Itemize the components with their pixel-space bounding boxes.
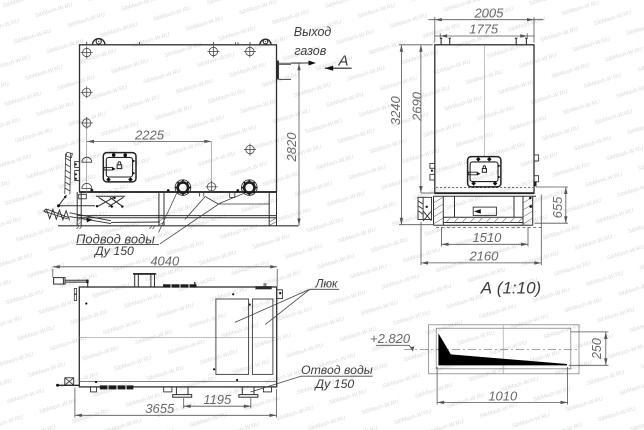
svg-text:2225: 2225 [134,127,165,142]
svg-text:2690: 2690 [410,91,425,122]
svg-text:газов: газов [294,44,326,58]
svg-text:3655: 3655 [145,401,175,416]
svg-text:А (1:10): А (1:10) [480,279,541,298]
svg-text:2160: 2160 [468,249,499,264]
svg-text:А: А [338,52,349,69]
svg-text:Люк: Люк [315,279,339,291]
svg-text:1010: 1010 [488,388,518,403]
svg-text:Ду 150: Ду 150 [313,377,354,391]
svg-text:+2.820: +2.820 [370,331,411,346]
svg-text:1510: 1510 [472,230,502,245]
svg-text:Выход: Выход [294,25,332,39]
svg-text:3240: 3240 [388,95,403,125]
svg-text:4040: 4040 [150,253,180,268]
svg-text:Ду 150: Ду 150 [93,244,134,258]
svg-text:250: 250 [590,338,604,360]
svg-text:Отвод воды: Отвод воды [301,363,373,377]
svg-text:2005: 2005 [473,5,504,20]
svg-text:1195: 1195 [203,392,232,407]
svg-text:2820: 2820 [284,132,299,163]
svg-text:1775: 1775 [469,22,499,37]
svg-text:655: 655 [550,196,565,218]
